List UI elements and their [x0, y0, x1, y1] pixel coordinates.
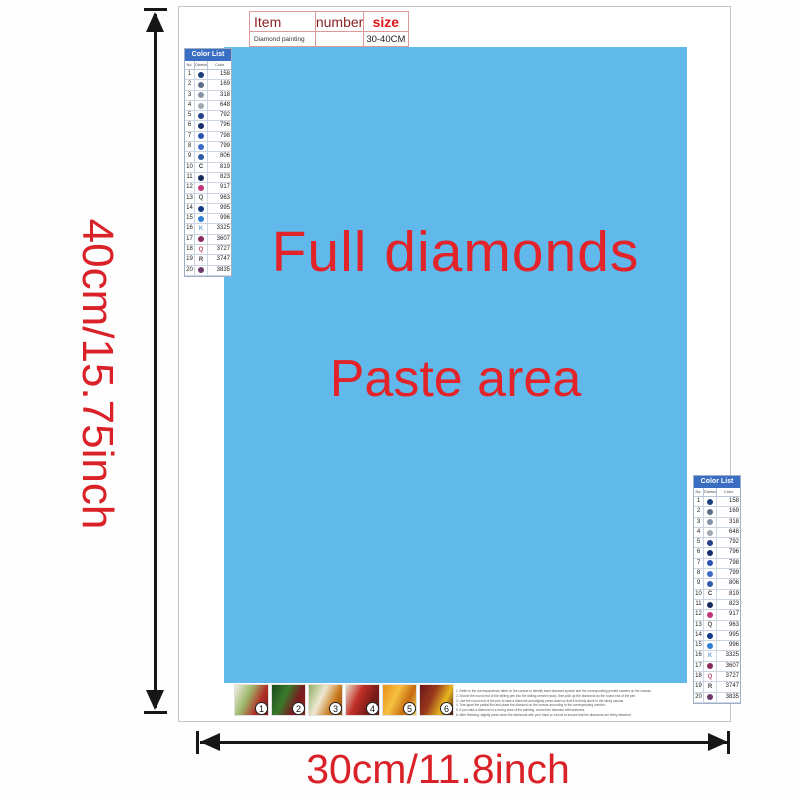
number-column-header: number [316, 12, 363, 31]
color-list-row-number: 15 [185, 214, 195, 223]
diamond-dot-icon [198, 82, 204, 88]
color-list-row-number: 19 [185, 255, 195, 264]
color-list-headers: No. Diamond Color [694, 488, 740, 497]
color-list-row-number: 8 [185, 142, 195, 151]
diamond-symbol-icon: Q [195, 194, 208, 203]
color-list-row-number: 7 [694, 559, 704, 568]
diamond-dot-icon [707, 643, 713, 649]
vertical-arrow-top-cap [144, 8, 167, 11]
color-list-row-number: 6 [694, 548, 704, 557]
color-list-row: 8799 [185, 142, 231, 152]
color-list-row: 7798 [185, 132, 231, 142]
diamond-symbol-icon: C [195, 163, 208, 172]
color-list-row: 19R3747 [694, 682, 740, 692]
step-number-badge: 1 [255, 702, 268, 715]
diamond-symbol-icon [704, 528, 717, 537]
color-list-body: 11582169331846485792679677988799980610C8… [185, 70, 231, 276]
color-list-row: 7798 [694, 559, 740, 569]
color-list-row: 9806 [694, 579, 740, 589]
color-list-right: Color List No. Diamond Color 11582169331… [693, 475, 741, 704]
diamond-symbol-icon [704, 538, 717, 547]
diamond-symbol-icon [195, 142, 208, 151]
number-value [316, 32, 363, 46]
diamond-symbol-icon [195, 101, 208, 110]
diamond-symbol-icon [195, 235, 208, 244]
diamond-dot-icon [707, 509, 713, 515]
color-list-row: 14995 [185, 204, 231, 214]
color-list-row: 4648 [185, 101, 231, 111]
diamond-symbol-icon: Q [704, 621, 717, 630]
diamond-dot-icon [198, 236, 204, 242]
diamond-dot-icon [198, 133, 204, 139]
diamond-symbol-icon: Q [704, 672, 717, 681]
step-thumbnail: 3 [308, 684, 343, 716]
diamond-dot-icon [198, 206, 204, 212]
color-list-row-number: 16 [185, 224, 195, 233]
diamond-symbol-icon: K [195, 224, 208, 233]
color-list-row: 13Q963 [185, 194, 231, 204]
diamond-symbol-icon [195, 152, 208, 161]
diamond-dot-icon [198, 154, 204, 160]
diamond-symbol-icon [704, 548, 717, 557]
color-list-row-number: 14 [185, 204, 195, 213]
dmc-color-code: 792 [208, 111, 231, 120]
diamond-symbol-icon [704, 579, 717, 588]
color-list-row: 11823 [185, 173, 231, 183]
dmc-color-code: 819 [208, 163, 231, 172]
diamond-symbol-icon [195, 173, 208, 182]
color-list-row: 15996 [694, 641, 740, 651]
product-diagram: Item number size Diamond painting 30-40C… [0, 0, 800, 800]
diamond-symbol-icon [704, 507, 717, 516]
diamond-dot-icon [707, 581, 713, 587]
dmc-color-code: 819 [717, 590, 740, 599]
diamond-symbol-icon [195, 266, 208, 275]
color-list-row: 3318 [185, 91, 231, 101]
dmc-color-code: 318 [208, 91, 231, 100]
color-list-row: 16K3325 [185, 224, 231, 234]
diamond-symbol-icon [704, 497, 717, 506]
color-list-row-number: 19 [694, 682, 704, 691]
width-dimension-label: 30cm/11.8inch [306, 746, 570, 793]
diamond-dot-icon [198, 92, 204, 98]
diamond-symbol-icon [704, 662, 717, 671]
item-table-header-row: Item number size [250, 12, 408, 32]
color-list-row: 173607 [694, 662, 740, 672]
diamond-symbol-icon [704, 641, 717, 650]
color-list-row-number: 9 [694, 579, 704, 588]
color-list-row: 2169 [694, 507, 740, 517]
color-list-row: 2169 [185, 80, 231, 90]
color-list-row-number: 7 [185, 132, 195, 141]
color-list-left: Color List No. Diamond Color 11582169331… [184, 48, 232, 277]
dmc-color-code: 648 [717, 528, 740, 537]
color-list-row: 9806 [185, 152, 231, 162]
dmc-color-code: 3727 [208, 245, 231, 254]
color-list-row: 203835 [694, 693, 740, 703]
color-list-row-number: 5 [185, 111, 195, 120]
item-info-table: Item number size Diamond painting 30-40C… [249, 11, 409, 47]
dmc-color-code: 917 [717, 610, 740, 619]
horizontal-arrow-right-cap [727, 731, 730, 754]
color-list-row: 4648 [694, 528, 740, 538]
diamond-symbol-icon [195, 121, 208, 130]
color-list-row: 10C819 [185, 163, 231, 173]
diamond-symbol-icon: R [704, 682, 717, 691]
color-list-row-number: 3 [694, 518, 704, 527]
diamond-dot-icon [707, 550, 713, 556]
item-value: Diamond painting [250, 32, 316, 46]
color-list-row-number: 2 [185, 80, 195, 89]
color-list-header-symbol: Diamond [704, 488, 717, 496]
dmc-color-code: 3325 [208, 224, 231, 233]
diamond-dot-icon [198, 103, 204, 109]
color-list-header-symbol: Diamond [195, 61, 208, 69]
canvas-sheet: Item number size Diamond painting 30-40C… [178, 6, 731, 722]
dmc-color-code: 3747 [208, 255, 231, 264]
step-thumbnail: 6 [419, 684, 454, 716]
dmc-color-code: 796 [208, 121, 231, 130]
dmc-color-code: 798 [717, 559, 740, 568]
dmc-color-code: 823 [208, 173, 231, 182]
color-list-row-number: 8 [694, 569, 704, 578]
diamond-symbol-icon [704, 569, 717, 578]
diamond-dot-icon [707, 499, 713, 505]
item-table-data-row: Diamond painting 30-40CM [250, 32, 408, 46]
diamond-dot-icon [707, 612, 713, 618]
color-list-row-number: 14 [694, 631, 704, 640]
step-thumbnail: 2 [271, 684, 306, 716]
diamond-dot-icon [198, 185, 204, 191]
color-list-row: 8799 [694, 569, 740, 579]
diamond-symbol-icon: Q [195, 245, 208, 254]
step-number-badge: 3 [329, 702, 342, 715]
step-thumbnail: 4 [345, 684, 380, 716]
dmc-color-code: 648 [208, 101, 231, 110]
color-list-header-color: Color [717, 488, 740, 496]
dmc-color-code: 995 [717, 631, 740, 640]
color-list-row-number: 11 [185, 173, 195, 182]
diamond-symbol-icon [704, 610, 717, 619]
color-list-row: 203835 [185, 266, 231, 276]
color-list-row: 15996 [185, 214, 231, 224]
diamond-dot-icon [198, 267, 204, 273]
size-column-header: size [364, 12, 408, 31]
color-list-row-number: 18 [694, 672, 704, 681]
color-list-row: 18Q3727 [185, 245, 231, 255]
color-list-row: 18Q3727 [694, 672, 740, 682]
diamond-dot-icon [707, 519, 713, 525]
diamond-symbol-icon [704, 559, 717, 568]
diamond-dot-icon [198, 175, 204, 181]
diamond-symbol-icon [195, 204, 208, 213]
color-list-row: 12917 [694, 610, 740, 620]
dmc-color-code: 169 [717, 507, 740, 516]
dmc-color-code: 799 [717, 569, 740, 578]
diamond-symbol-icon [195, 132, 208, 141]
item-column-header: Item [250, 12, 316, 31]
horizontal-arrow-right-head [708, 733, 728, 751]
paste-area-title-line2: Paste area [224, 349, 687, 409]
height-dimension-label: 40cm/15.75inch [72, 219, 122, 530]
diamond-dot-icon [198, 144, 204, 150]
dmc-color-code: 3835 [208, 266, 231, 275]
color-list-row-number: 20 [185, 266, 195, 275]
dmc-color-code: 3607 [717, 662, 740, 671]
diamond-dot-icon [707, 540, 713, 546]
color-list-row-number: 13 [694, 621, 704, 630]
diamond-symbol-icon [195, 111, 208, 120]
color-list-row: 13Q963 [694, 621, 740, 631]
color-list-row-number: 20 [694, 693, 704, 702]
color-list-row-number: 15 [694, 641, 704, 650]
dmc-color-code: 3747 [717, 682, 740, 691]
vertical-arrow-line [154, 14, 157, 708]
step-thumbnails: 123456 [234, 684, 454, 716]
diamond-symbol-icon [195, 91, 208, 100]
dmc-color-code: 963 [717, 621, 740, 630]
color-list-row-number: 12 [694, 610, 704, 619]
color-list-row: 12917 [185, 183, 231, 193]
color-list-row-number: 18 [185, 245, 195, 254]
step-number-badge: 4 [366, 702, 379, 715]
instruction-text: 1. Refer to the correspondence table on … [456, 689, 688, 718]
diamond-dot-icon [707, 530, 713, 536]
dmc-color-code: 917 [208, 183, 231, 192]
color-list-header-no: No. [694, 488, 704, 496]
paste-area: Full diamonds Paste area [224, 47, 687, 683]
diamond-dot-icon [198, 72, 204, 78]
dmc-color-code: 3325 [717, 651, 740, 660]
color-list-row-number: 11 [694, 600, 704, 609]
dmc-color-code: 169 [208, 80, 231, 89]
dmc-color-code: 3607 [208, 235, 231, 244]
diamond-symbol-icon [195, 70, 208, 79]
color-list-row: 1158 [185, 70, 231, 80]
diamond-dot-icon [707, 571, 713, 577]
color-list-header-no: No. [185, 61, 195, 69]
dmc-color-code: 823 [717, 600, 740, 609]
color-list-row-number: 12 [185, 183, 195, 192]
horizontal-arrow-line [200, 741, 728, 744]
color-list-row: 6796 [694, 548, 740, 558]
step-number-badge: 2 [292, 702, 305, 715]
color-list-row-number: 2 [694, 507, 704, 516]
dmc-color-code: 318 [717, 518, 740, 527]
step-number-badge: 6 [440, 702, 453, 715]
color-list-row-number: 17 [185, 235, 195, 244]
color-list-row: 173607 [185, 235, 231, 245]
vertical-arrow-bottom-cap [144, 711, 167, 714]
diamond-symbol-icon [195, 183, 208, 192]
color-list-row-number: 5 [694, 538, 704, 547]
vertical-arrow-down-head [146, 690, 164, 710]
color-list-row: 14995 [694, 631, 740, 641]
color-list-title: Color List [185, 49, 231, 61]
step-number-badge: 5 [403, 702, 416, 715]
diamond-dot-icon [707, 663, 713, 669]
diamond-symbol-icon [704, 518, 717, 527]
dmc-color-code: 799 [208, 142, 231, 151]
color-list-row-number: 4 [185, 101, 195, 110]
dmc-color-code: 3835 [717, 693, 740, 702]
diamond-symbol-icon: K [704, 651, 717, 660]
color-list-row-number: 10 [185, 163, 195, 172]
diamond-dot-icon [198, 113, 204, 119]
color-list-title: Color List [694, 476, 740, 488]
dmc-color-code: 158 [208, 70, 231, 79]
diamond-symbol-icon [195, 80, 208, 89]
color-list-row: 6796 [185, 121, 231, 131]
color-list-row-number: 4 [694, 528, 704, 537]
step-thumbnail: 5 [382, 684, 417, 716]
color-list-headers: No. Diamond Color [185, 61, 231, 70]
dmc-color-code: 995 [208, 204, 231, 213]
diamond-dot-icon [198, 123, 204, 129]
instruction-line: 6. After finishing, slightly press down … [456, 713, 688, 718]
dmc-color-code: 996 [717, 641, 740, 650]
color-list-row-number: 3 [185, 91, 195, 100]
color-list-row-number: 9 [185, 152, 195, 161]
dmc-color-code: 158 [717, 497, 740, 506]
horizontal-arrow-left-cap [196, 731, 199, 754]
dmc-color-code: 996 [208, 214, 231, 223]
diamond-dot-icon [707, 694, 713, 700]
size-value: 30-40CM [364, 32, 408, 46]
color-list-row-number: 1 [694, 497, 704, 506]
color-list-row-number: 1 [185, 70, 195, 79]
dmc-color-code: 963 [208, 194, 231, 203]
diamond-dot-icon [198, 216, 204, 222]
color-list-row-number: 13 [185, 194, 195, 203]
color-list-row: 3318 [694, 518, 740, 528]
diamond-symbol-icon: R [195, 255, 208, 264]
color-list-row-number: 16 [694, 651, 704, 660]
step-thumbnail: 1 [234, 684, 269, 716]
color-list-row-number: 6 [185, 121, 195, 130]
dmc-color-code: 792 [717, 538, 740, 547]
color-list-row: 5792 [694, 538, 740, 548]
diamond-dot-icon [707, 602, 713, 608]
color-list-row: 11823 [694, 600, 740, 610]
color-list-row: 1158 [694, 497, 740, 507]
diamond-dot-icon [707, 633, 713, 639]
dmc-color-code: 3727 [717, 672, 740, 681]
color-list-row: 10C819 [694, 590, 740, 600]
diamond-dot-icon [707, 560, 713, 566]
color-list-row-number: 17 [694, 662, 704, 671]
diamond-symbol-icon [704, 600, 717, 609]
paste-area-title-line1: Full diamonds [224, 219, 687, 285]
color-list-row: 16K3325 [694, 651, 740, 661]
dmc-color-code: 806 [208, 152, 231, 161]
color-list-row: 5792 [185, 111, 231, 121]
diamond-symbol-icon [195, 214, 208, 223]
dmc-color-code: 798 [208, 132, 231, 141]
diamond-symbol-icon: C [704, 590, 717, 599]
color-list-row-number: 10 [694, 590, 704, 599]
color-list-body: 11582169331846485792679677988799980610C8… [694, 497, 740, 703]
color-list-row: 19R3747 [185, 255, 231, 265]
dmc-color-code: 806 [717, 579, 740, 588]
color-list-header-color: Color [208, 61, 231, 69]
diamond-symbol-icon [704, 693, 717, 702]
diamond-symbol-icon [704, 631, 717, 640]
dmc-color-code: 796 [717, 548, 740, 557]
